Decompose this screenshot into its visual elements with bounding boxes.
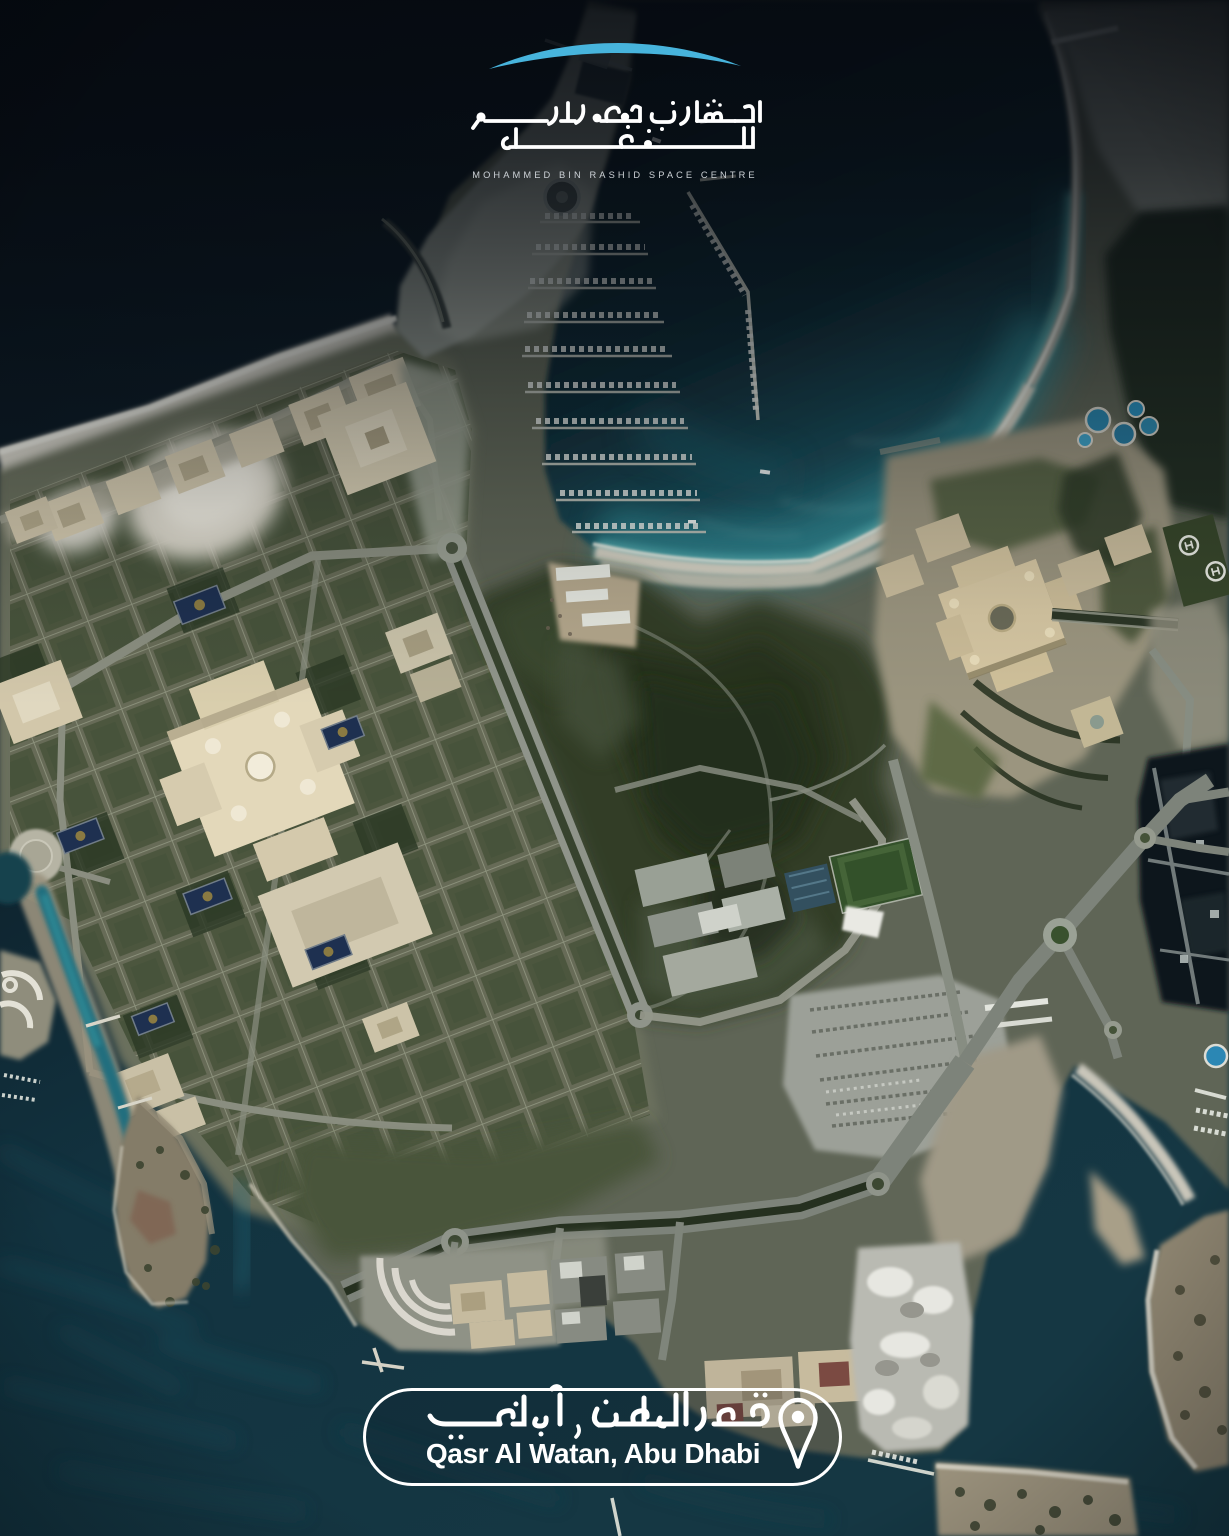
svg-text:Qasr Al Watan, Abu Dhabi: Qasr Al Watan, Abu Dhabi <box>426 1438 760 1469</box>
svg-text:MOHAMMED BIN RASHID SPACE CENT: MOHAMMED BIN RASHID SPACE CENTRE <box>472 170 758 180</box>
